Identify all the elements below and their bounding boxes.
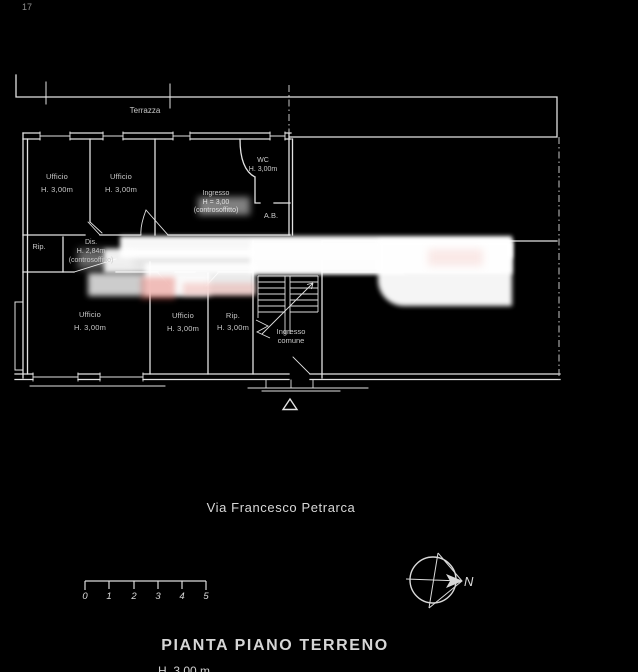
entrance-triangle-icon (283, 399, 297, 410)
scale-number-2: 2 (126, 591, 142, 602)
corner-annotation: 17 (22, 2, 32, 12)
entrance-door-leaf (293, 357, 310, 374)
north-compass-icon (406, 553, 463, 608)
terrace-label: Terrazza (120, 106, 170, 115)
north-label: N (464, 574, 473, 589)
watermark-pink-remnant (141, 277, 175, 300)
door-swings (88, 210, 168, 235)
scale-number-1: 1 (101, 591, 117, 602)
boundary-dashdot-lines (289, 85, 559, 380)
room-label-ufficio-3: UfficioH. 3,00m (61, 308, 119, 334)
scale-number-5: 5 (198, 591, 214, 602)
watermark-smudge (198, 197, 250, 215)
floor-plan-page: 17 Terrazza UfficioH. 3,00m UfficioH. 3,… (0, 0, 638, 672)
height-note-cutoff: H. 3,00 m (158, 664, 210, 672)
room-label-rip-2: Rip.H. 3,00m (210, 310, 256, 334)
room-label-ab: A.B. (258, 212, 284, 221)
room-label-wc: WCH. 3,00m (244, 157, 282, 174)
scale-bar (85, 581, 206, 590)
watermark-pink-remnant (428, 249, 483, 266)
street-name: Via Francesco Petrarca (170, 500, 392, 515)
outside-steps (30, 380, 368, 391)
floor-plan-drawing (0, 0, 638, 672)
page-title: PIANTA PIANO TERRENO (156, 637, 394, 655)
room-label-dis: Dis.H. 2,84m(controsoffitto) (62, 238, 120, 265)
room-label-rip-1: Rip. (24, 243, 54, 252)
watermark-pink-remnant (183, 283, 255, 296)
room-label-ufficio-2: UfficioH. 3,00m (92, 170, 150, 196)
scale-number-3: 3 (150, 591, 166, 602)
room-label-ufficio-4: UfficioH. 3,00m (154, 309, 212, 335)
scale-number-0: 0 (77, 591, 93, 602)
room-label-ingresso-comune: Ingressocomune (266, 327, 316, 345)
scale-number-4: 4 (174, 591, 190, 602)
room-label-ufficio-1: UfficioH. 3,00m (28, 170, 86, 196)
